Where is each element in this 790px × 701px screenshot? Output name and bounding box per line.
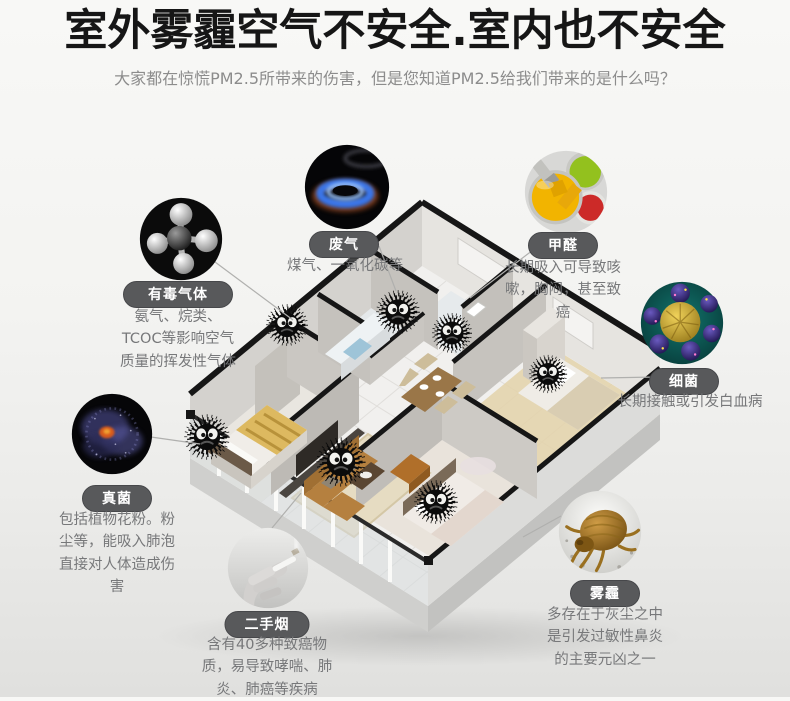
dust-mite-icon <box>558 490 642 574</box>
molecule-icon <box>139 197 223 281</box>
callout-label-toxic-gas: 有毒气体 <box>123 281 233 308</box>
callout-desc-smog: 多存在于灰尘之中是引发过敏性鼻炎的主要元凶之一 <box>547 604 663 671</box>
smoking-hand-icon <box>227 527 309 609</box>
callout-desc-waste-gas: 煤气、一氧化碳等 <box>287 255 403 277</box>
paint-cans-icon <box>524 150 608 234</box>
bacteria-icon <box>640 281 724 365</box>
connector-fungus <box>151 437 200 444</box>
callout-desc-secondhand-smoke: 含有40多种致癌物质，易导致哮喘、肺炎、肺癌等疾病 <box>202 634 333 701</box>
callout-label-fungus: 真菌 <box>82 485 152 512</box>
gas-flame-icon <box>304 144 390 230</box>
callout-label-smog: 雾霾 <box>570 580 640 607</box>
connector-smog <box>523 516 561 537</box>
connector-smoke <box>272 493 301 528</box>
callout-desc-formaldehyde: 长期吸入可导致咳嗽，胸闷，甚至致癌 <box>505 257 621 324</box>
callout-label-formaldehyde: 甲醛 <box>528 232 598 259</box>
callout-desc-fungus: 包括植物花粉。粉尘等，能吸入肺泡直接对人体造成伤害 <box>59 509 175 599</box>
callout-desc-toxic-gas: 氨气、烷类、TCOC等影响空气质量的挥发性气体 <box>120 306 236 373</box>
callout-desc-bacteria: 长期接触或引发白血病 <box>618 391 763 413</box>
callout-label-waste-gas: 废气 <box>309 231 379 258</box>
infographic-page: 室外雾霾空气不安全.室内也不安全 大家都在惊慌PM2.5所带来的伤害，但是您知道… <box>0 0 790 697</box>
fungus-icon <box>71 393 153 475</box>
